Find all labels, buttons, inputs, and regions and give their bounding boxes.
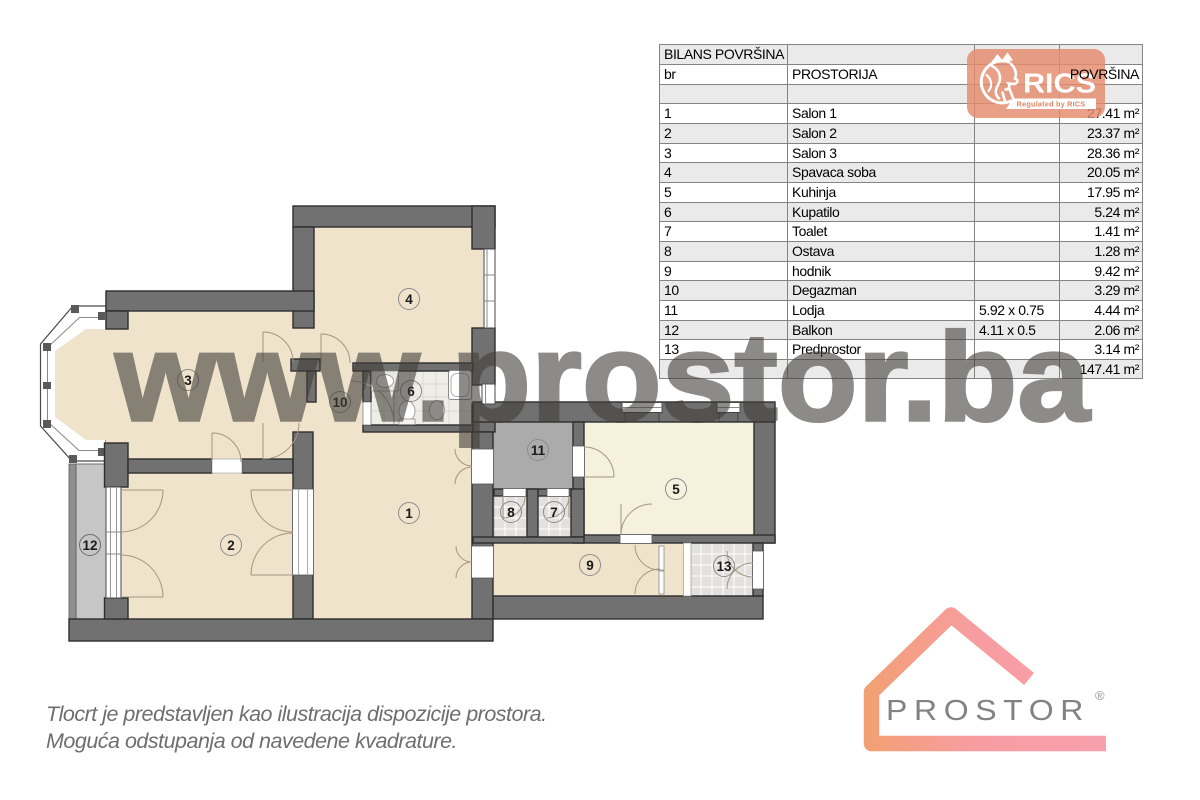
svg-text:PROSTOR: PROSTOR [886, 695, 1090, 727]
svg-text:®: ® [1095, 688, 1105, 703]
svg-text:www.prostor.ba: www.prostor.ba [114, 307, 1091, 448]
svg-text:Regulated by RICS: Regulated by RICS [1017, 100, 1086, 109]
